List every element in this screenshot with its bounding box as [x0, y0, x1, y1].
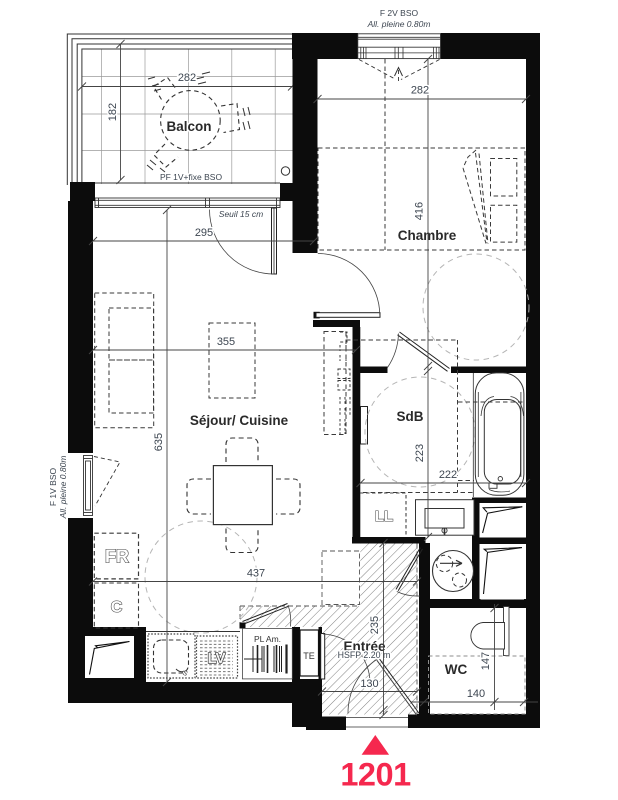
svg-text:C: C	[111, 599, 123, 616]
svg-text:F 2V BSO: F 2V BSO	[380, 8, 419, 18]
svg-text:PL Am.: PL Am.	[254, 634, 281, 644]
svg-text:222: 222	[439, 469, 457, 481]
svg-text:FR: FR	[105, 547, 129, 567]
svg-text:223: 223	[414, 444, 426, 462]
svg-text:235: 235	[369, 616, 381, 634]
svg-text:295: 295	[195, 227, 213, 239]
svg-text:140: 140	[467, 688, 485, 700]
svg-text:F 1V BSO: F 1V BSO	[48, 467, 58, 506]
svg-text:All. pleine 0.80m: All. pleine 0.80m	[58, 456, 68, 520]
svg-text:WC: WC	[445, 662, 468, 677]
svg-text:HSFP 2.20 m: HSFP 2.20 m	[338, 650, 391, 660]
svg-text:1201: 1201	[340, 757, 411, 793]
svg-text:Séjour/ Cuisine: Séjour/ Cuisine	[190, 413, 289, 428]
svg-text:Chambre: Chambre	[398, 228, 457, 243]
svg-text:LV: LV	[207, 650, 225, 667]
svg-text:Balcon: Balcon	[166, 119, 211, 134]
svg-text:182: 182	[107, 103, 119, 121]
svg-text:TE: TE	[303, 651, 315, 661]
svg-text:416: 416	[414, 202, 426, 220]
svg-text:All. pleine 0.80m: All. pleine 0.80m	[367, 19, 431, 29]
svg-text:PF 1V+fixe BSO: PF 1V+fixe BSO	[160, 172, 223, 182]
svg-text:Seuil 15 cm: Seuil 15 cm	[219, 209, 263, 219]
svg-text:130: 130	[360, 678, 378, 690]
svg-text:282: 282	[178, 72, 196, 84]
svg-text:437: 437	[247, 568, 265, 580]
svg-text:147: 147	[480, 652, 492, 670]
svg-text:282: 282	[411, 85, 429, 97]
svg-text:LL: LL	[375, 508, 393, 525]
svg-text:635: 635	[153, 433, 165, 451]
svg-text:355: 355	[217, 336, 235, 348]
svg-text:SdB: SdB	[397, 409, 424, 424]
